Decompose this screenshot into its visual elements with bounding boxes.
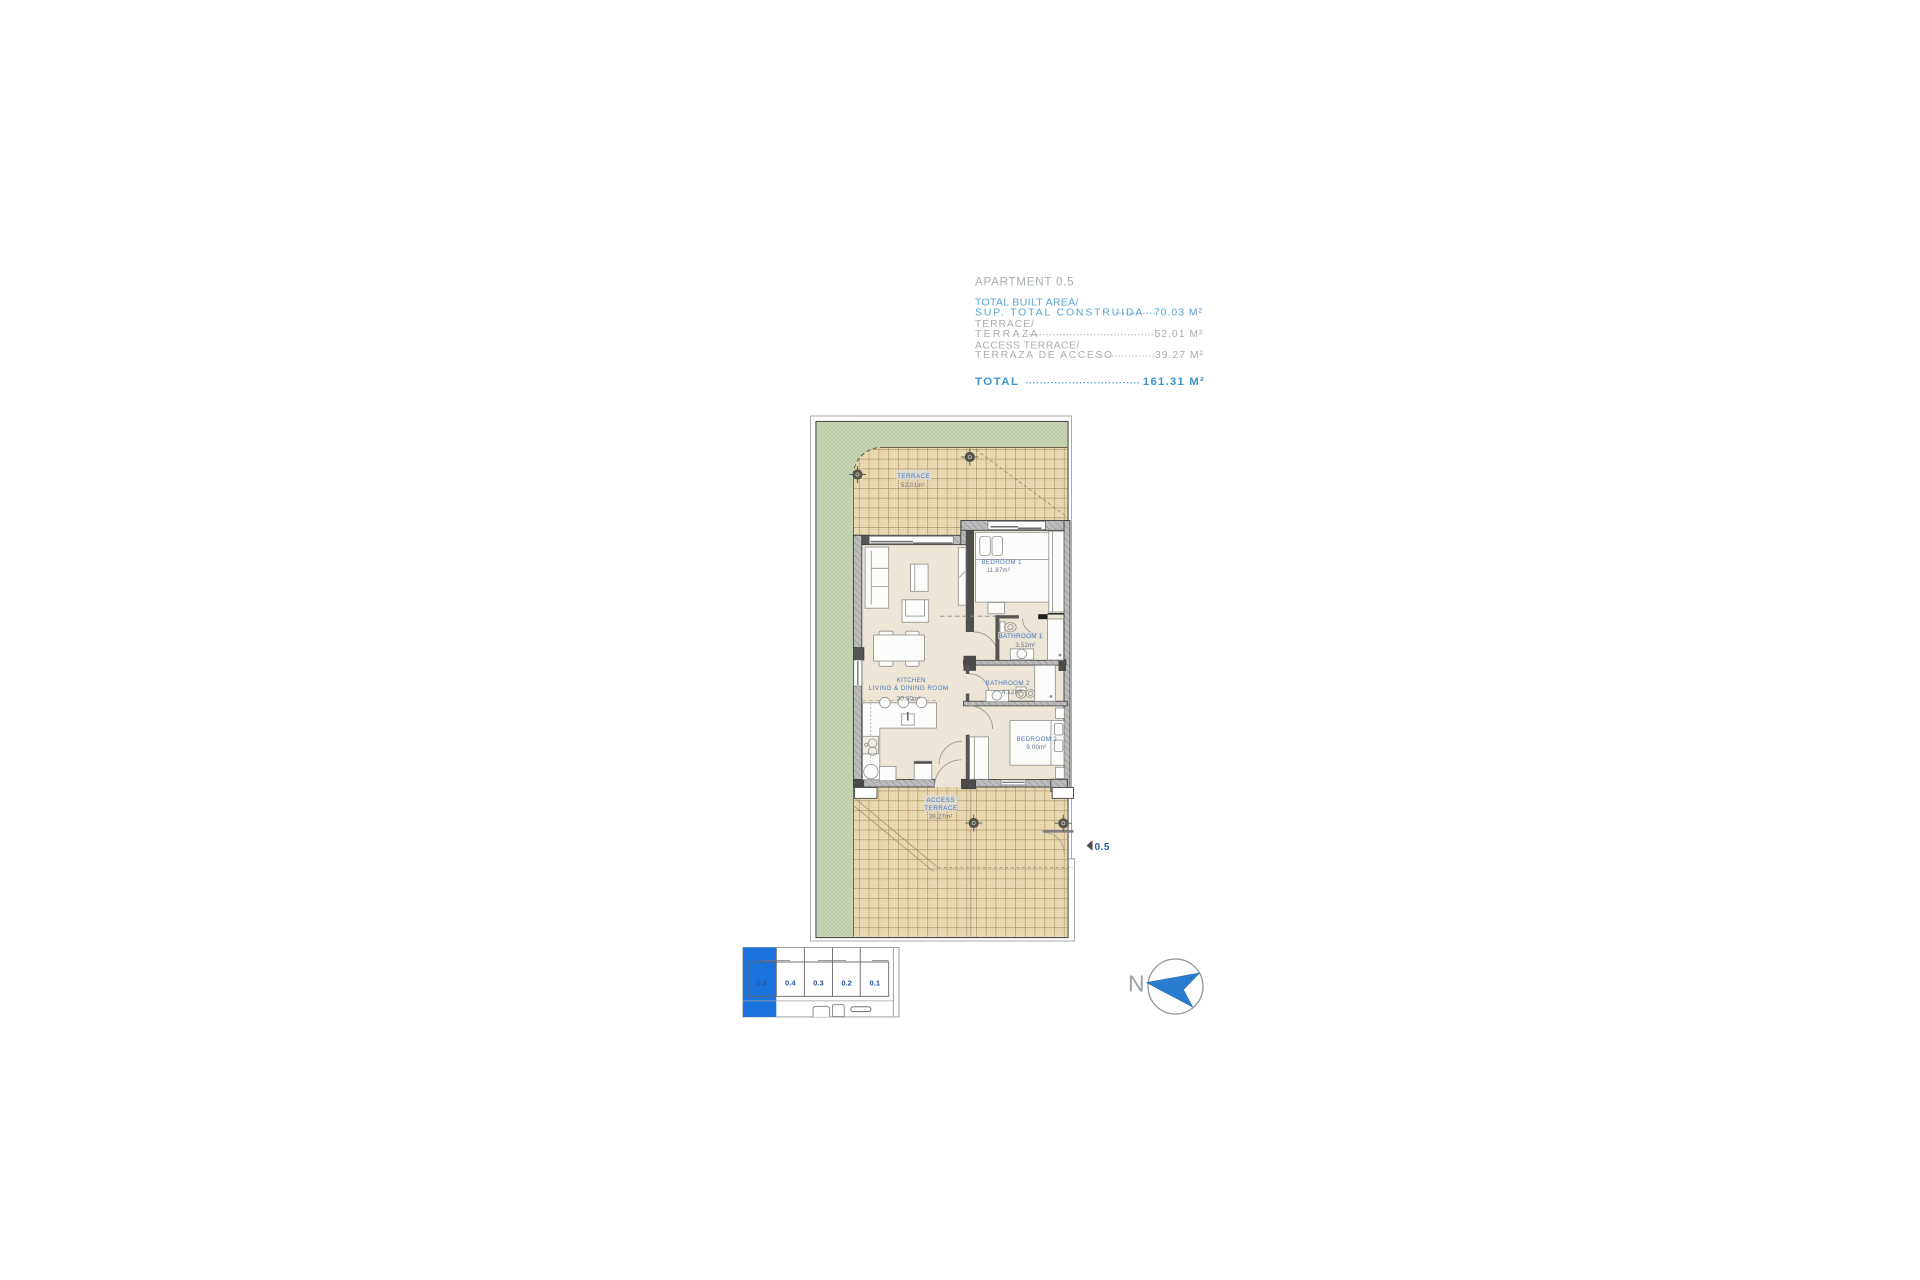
svg-text:11.87m²: 11.87m² bbox=[987, 567, 1010, 574]
svg-text:TOTAL: TOTAL bbox=[975, 376, 1019, 388]
svg-text:N: N bbox=[1128, 971, 1145, 997]
svg-text:52.01 M²: 52.01 M² bbox=[1154, 329, 1203, 340]
svg-text:70.03 M²: 70.03 M² bbox=[1154, 307, 1203, 318]
svg-text:9.00m²: 9.00m² bbox=[1026, 744, 1046, 751]
svg-text:TERRAZA DE ACCESO: TERRAZA DE ACCESO bbox=[975, 350, 1114, 361]
svg-text:APARTMENT 0.5: APARTMENT 0.5 bbox=[975, 276, 1074, 289]
svg-text:4.12m²: 4.12m² bbox=[1002, 689, 1022, 696]
svg-text:0.5: 0.5 bbox=[757, 978, 768, 987]
svg-text:SUP. TOTAL CONSTRUIDA: SUP. TOTAL CONSTRUIDA bbox=[975, 307, 1144, 318]
svg-text:0.5: 0.5 bbox=[1095, 842, 1110, 853]
svg-text:52.01m²: 52.01m² bbox=[901, 482, 925, 489]
svg-text:BATHROOM 1: BATHROOM 1 bbox=[999, 633, 1043, 640]
svg-text:BEDROOM 1: BEDROOM 1 bbox=[981, 559, 1022, 566]
svg-text:0.4: 0.4 bbox=[785, 978, 796, 987]
svg-text:39.27 M²: 39.27 M² bbox=[1155, 350, 1204, 361]
svg-text:KITCHEN: KITCHEN bbox=[897, 677, 926, 684]
svg-text:3.52m²: 3.52m² bbox=[1015, 642, 1035, 649]
svg-text:0.1: 0.1 bbox=[870, 978, 881, 987]
svg-text:30.30m²: 30.30m² bbox=[897, 695, 921, 702]
svg-text:39.27m²: 39.27m² bbox=[929, 814, 953, 821]
svg-text:0.3: 0.3 bbox=[813, 978, 824, 987]
svg-text:ACCESS: ACCESS bbox=[926, 797, 955, 804]
svg-text:0.2: 0.2 bbox=[841, 978, 852, 987]
svg-text:161.31 M²: 161.31 M² bbox=[1143, 376, 1205, 388]
svg-text:TERRACE: TERRACE bbox=[924, 805, 957, 812]
svg-text:TERRACE: TERRACE bbox=[897, 473, 930, 480]
svg-text:BEDROOM 2: BEDROOM 2 bbox=[1017, 736, 1058, 743]
svg-text:LIVING & DINING ROOM: LIVING & DINING ROOM bbox=[869, 685, 949, 692]
svg-text:BATHROOM 2: BATHROOM 2 bbox=[986, 680, 1030, 687]
